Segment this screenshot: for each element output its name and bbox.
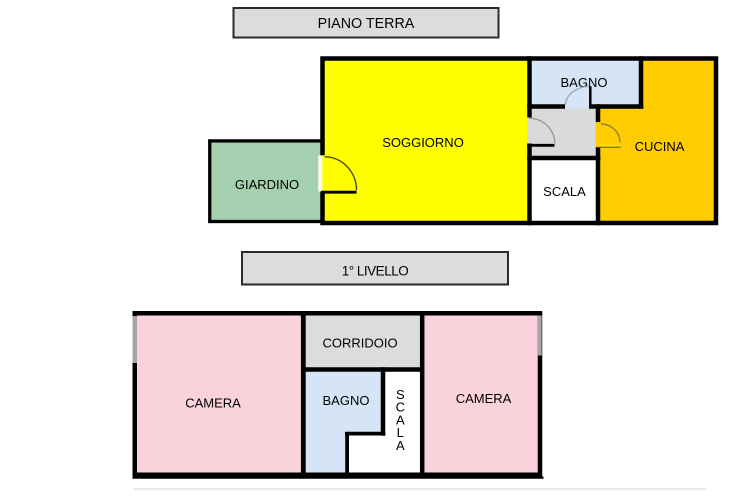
svg-text:BAGNO: BAGNO (323, 393, 370, 408)
svg-text:CORRIDOIO: CORRIDOIO (322, 335, 397, 350)
svg-text:CUCINA: CUCINA (635, 139, 685, 154)
svg-text:PIANO TERRA: PIANO TERRA (318, 16, 415, 32)
svg-text:CAMERA: CAMERA (456, 391, 512, 406)
svg-text:SOGGIORNO: SOGGIORNO (382, 135, 464, 150)
svg-text:CAMERA: CAMERA (185, 396, 241, 411)
svg-text:SCALA: SCALA (543, 184, 586, 199)
svg-text:A: A (396, 438, 405, 453)
svg-text:GIARDINO: GIARDINO (235, 177, 299, 192)
svg-text:1° LIVELLO: 1° LIVELLO (342, 264, 408, 279)
svg-text:BAGNO: BAGNO (561, 75, 608, 90)
